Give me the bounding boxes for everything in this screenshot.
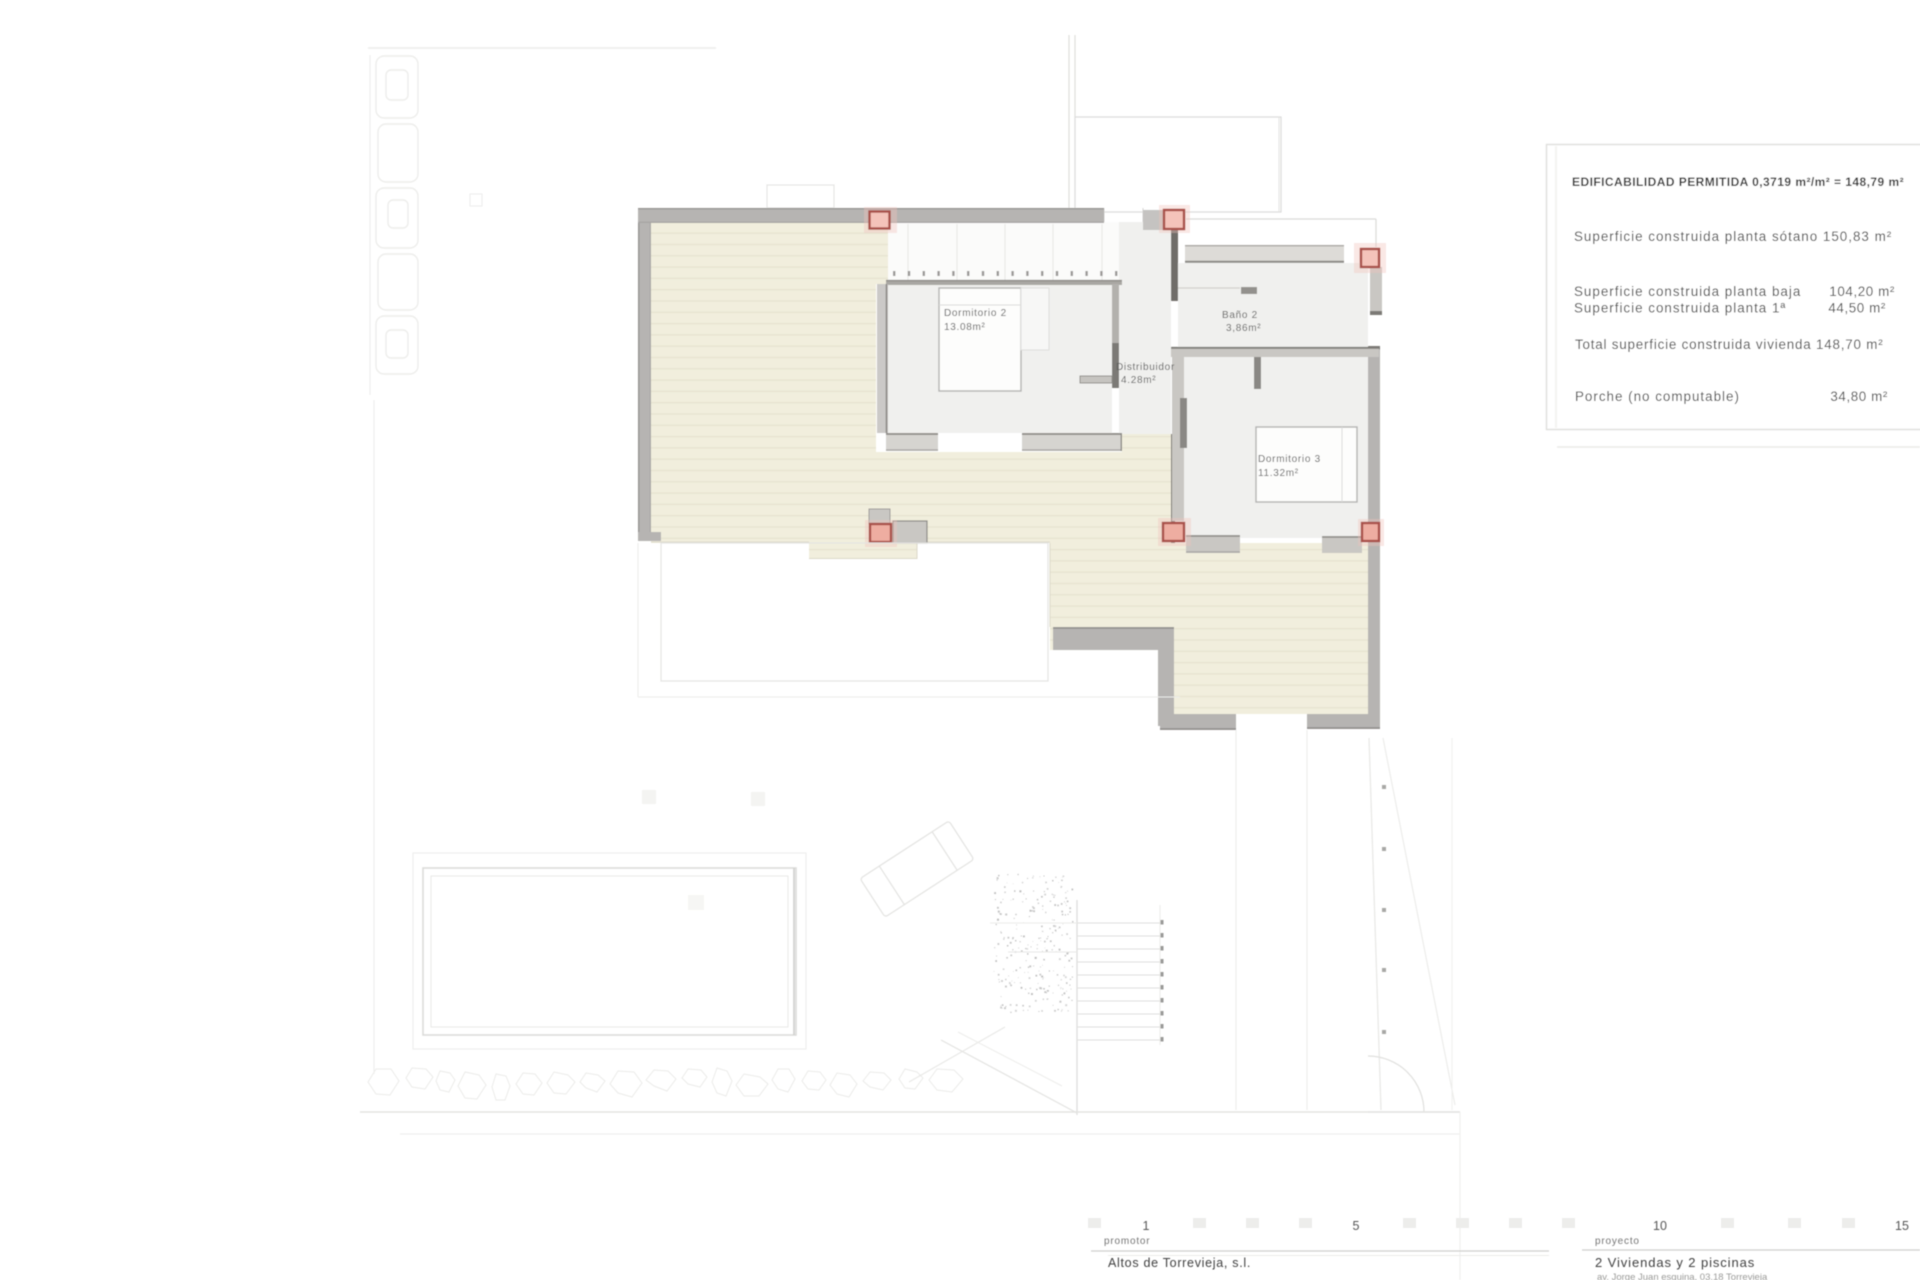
svg-text:proyecto: proyecto — [1595, 1236, 1640, 1247]
svg-text:34,80 m²: 34,80 m² — [1830, 389, 1888, 404]
svg-text:Dormitorio 3: Dormitorio 3 — [1258, 454, 1321, 465]
svg-text:Superficie construida planta s: Superficie construida planta sótano 150,… — [1574, 229, 1892, 244]
svg-text:2 Viviendas y 2 piscinas: 2 Viviendas y 2 piscinas — [1595, 1255, 1755, 1270]
svg-text:10: 10 — [1653, 1219, 1667, 1233]
svg-text:5: 5 — [1353, 1219, 1360, 1233]
svg-text:Distribuidor: Distribuidor — [1116, 362, 1175, 373]
svg-text:EDIFICABILIDAD PERMITIDA 0,371: EDIFICABILIDAD PERMITIDA 0,3719 m²/m² = … — [1572, 175, 1904, 189]
svg-text:promotor: promotor — [1104, 1236, 1150, 1247]
svg-text:3,86m²: 3,86m² — [1226, 323, 1261, 334]
svg-text:13.08m²: 13.08m² — [944, 322, 986, 333]
svg-text:av. Jorge Juan esquina, 03.18: av. Jorge Juan esquina, 03.18 Torrevieja — [1597, 1272, 1768, 1280]
svg-text:Altos de Torrevieja, s.l.: Altos de Torrevieja, s.l. — [1108, 1256, 1251, 1270]
svg-text:4.28m²: 4.28m² — [1121, 375, 1156, 386]
svg-text:11.32m²: 11.32m² — [1258, 468, 1299, 479]
svg-text:104,20 m²: 104,20 m² — [1829, 284, 1895, 299]
svg-text:Superficie construida planta b: Superficie construida planta baja — [1574, 284, 1801, 299]
svg-text:Porche (no computable): Porche (no computable) — [1575, 389, 1740, 404]
svg-text:Total superficie construida vi: Total superficie construida vivienda 148… — [1575, 337, 1883, 352]
svg-text:Baño 2: Baño 2 — [1222, 310, 1258, 321]
svg-text:15: 15 — [1895, 1219, 1909, 1233]
svg-text:44,50 m²: 44,50 m² — [1828, 301, 1886, 316]
svg-text:Superficie construida planta 1: Superficie construida planta 1ª — [1574, 301, 1786, 316]
svg-text:Dormitorio 2: Dormitorio 2 — [944, 308, 1007, 319]
svg-text:1: 1 — [1143, 1219, 1150, 1233]
